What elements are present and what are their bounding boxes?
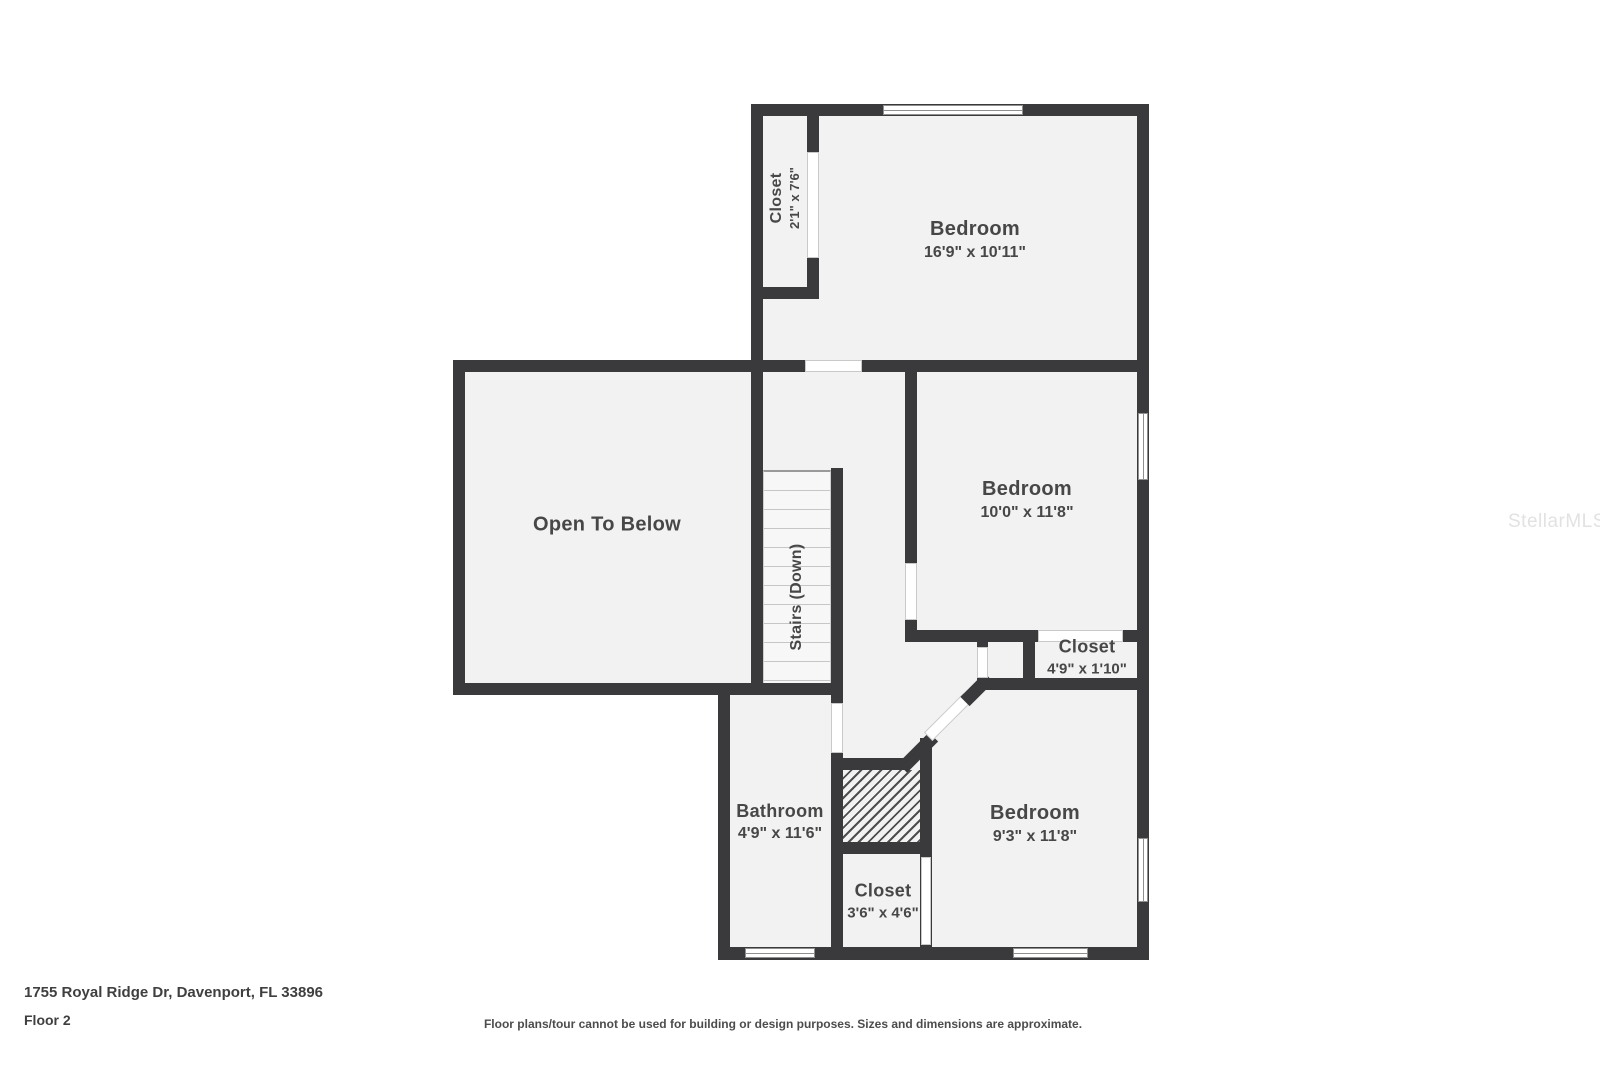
window [1138, 838, 1148, 902]
address-text: 1755 Royal Ridge Dr, Davenport, FL 33896 [24, 984, 323, 1001]
wall-stair-right [831, 468, 843, 703]
room-label-closet-bottom: Closet 3'6" x 4'6" [847, 881, 918, 922]
wall-bedroom3-top [977, 678, 1149, 690]
room-label-bedroom-bottom: Bedroom 9'3" x 11'8" [990, 802, 1080, 846]
door-opening-bedroom-mid [905, 563, 917, 620]
door-opening-closet-top [807, 152, 819, 258]
wall [751, 372, 763, 695]
room-label-stairs: Stairs (Down) [788, 543, 806, 650]
wall-middle-horizontal [453, 360, 1149, 372]
wall-hatch-bottom [831, 842, 932, 854]
door-opening-bathroom [831, 703, 843, 753]
window [1138, 413, 1148, 480]
wall [1137, 690, 1149, 960]
room-label-open-to-below: Open To Below [533, 514, 681, 537]
hatched-shaft-area [843, 770, 920, 842]
wall [718, 683, 730, 960]
room-label-bedroom-top: Bedroom 16'9" x 10'11" [924, 218, 1026, 262]
room-label-closet-mid: Closet 4'9" x 1'10" [1047, 637, 1127, 678]
window [745, 948, 815, 958]
wall [453, 683, 843, 695]
wall [453, 360, 465, 695]
door-opening-linen [977, 647, 988, 678]
wall [1137, 104, 1149, 372]
disclaimer-text: Floor plans/tour cannot be used for buil… [484, 1017, 1082, 1031]
window [1013, 948, 1088, 958]
door-opening-bedroom-top [805, 360, 862, 372]
room-label-bedroom-mid: Bedroom 10'0" x 11'8" [980, 478, 1073, 522]
window [883, 105, 1023, 115]
room-label-bathroom: Bathroom 4'9" x 11'6" [736, 801, 823, 843]
wall-closet-bottom [751, 287, 819, 299]
wall-hatch-top [843, 758, 905, 770]
door-opening-closet-bottom [921, 857, 931, 945]
floor-label: Floor 2 [24, 1012, 71, 1028]
stellar-mls-watermark: StellarMLS [1508, 511, 1600, 533]
floor-plan-page: Closet 2'1" x 7'6" Bedroom 16'9" x 10'11… [0, 0, 1600, 1066]
room-label-closet-top: Closet 2'1" x 7'6" [768, 167, 802, 229]
wall [751, 104, 763, 372]
